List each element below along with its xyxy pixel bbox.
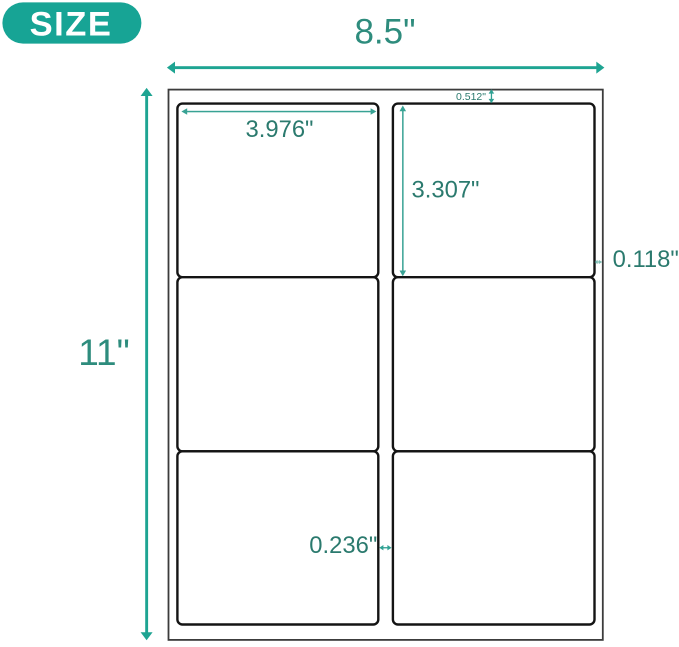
svg-text:11": 11" — [78, 332, 130, 373]
svg-text:3.976": 3.976" — [246, 116, 314, 143]
svg-text:0.236": 0.236" — [309, 532, 377, 559]
svg-text:3.307": 3.307" — [412, 177, 480, 204]
svg-text:0.512": 0.512" — [456, 91, 486, 103]
svg-text:8.5": 8.5" — [354, 13, 415, 52]
svg-text:0.118": 0.118" — [613, 246, 679, 273]
svg-text:SIZE: SIZE — [30, 5, 113, 43]
